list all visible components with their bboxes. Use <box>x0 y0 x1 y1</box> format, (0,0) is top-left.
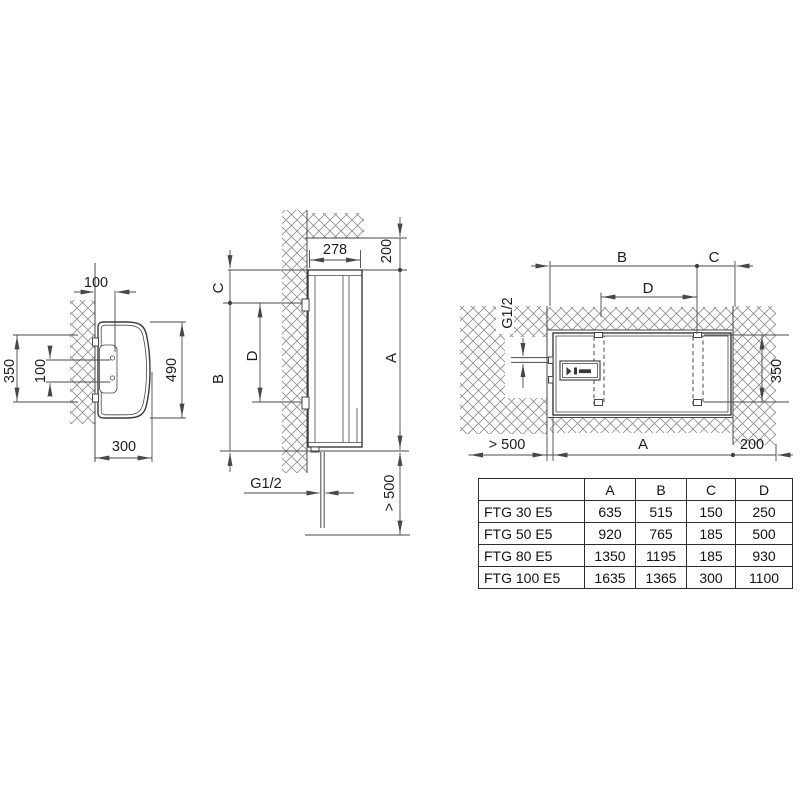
rail-hook <box>694 400 702 406</box>
wall-hatch <box>70 300 95 424</box>
value-cell: 635 <box>585 501 636 523</box>
dim-label-c: C <box>210 282 227 293</box>
horizontal-mounting-view: G1/2 B C D 350 > 500 A <box>460 249 793 461</box>
value-cell: 1635 <box>585 567 636 589</box>
header-cell-model <box>479 479 585 501</box>
table-row: FTG 80 E5 1350 1195 185 930 <box>479 545 793 567</box>
dim-label-width: 278 <box>323 242 347 258</box>
dim-label-bracket-span: 350 <box>769 359 785 383</box>
wall-hatch <box>282 210 307 473</box>
value-cell: 250 <box>736 501 793 523</box>
table-row: FTG 100 E5 1635 1365 300 1100 <box>479 567 793 589</box>
model-cell: FTG 80 E5 <box>479 545 585 567</box>
wall-bracket <box>302 397 309 409</box>
wall-bracket <box>93 338 99 346</box>
dim-label-b: B <box>210 374 227 384</box>
value-cell: 185 <box>687 523 736 545</box>
pipe-stub <box>549 377 554 384</box>
dim-label-pipe-thread: G1/2 <box>250 476 281 492</box>
table-header-row: A B C D <box>479 479 793 501</box>
dim-label-bracket-span: 350 <box>2 359 18 383</box>
dim-label-hole-spacing: 100 <box>33 359 49 383</box>
value-cell: 1195 <box>636 545 687 567</box>
ceiling-hatch <box>307 213 364 238</box>
table-row: FTG 50 E5 920 765 185 500 <box>479 523 793 545</box>
dim-label-b: B <box>617 249 627 266</box>
pipe-stub <box>549 357 554 364</box>
value-cell: 1100 <box>736 567 793 589</box>
dim-label-height: 490 <box>164 358 180 382</box>
header-cell-c: C <box>687 479 736 501</box>
value-cell: 930 <box>736 545 793 567</box>
heater-body <box>308 270 362 447</box>
value-cell: 1365 <box>636 567 687 589</box>
mounting-hole <box>110 376 114 380</box>
wall-hatch <box>547 307 733 330</box>
header-cell-b: B <box>636 479 687 501</box>
header-cell-d: D <box>736 479 793 501</box>
slider-icon <box>579 369 591 373</box>
drawing-svg: 100 350 100 490 300 <box>0 0 800 800</box>
technical-drawing-canvas: 100 350 100 490 300 <box>0 0 800 800</box>
dim-label-side-clearance: 200 <box>740 437 764 453</box>
dim-label-ceiling-clearance: 200 <box>379 239 395 263</box>
wall-bracket <box>93 394 99 402</box>
mounting-recess <box>100 345 118 393</box>
model-cell: FTG 30 E5 <box>479 501 585 523</box>
model-cell: FTG 100 E5 <box>479 567 585 589</box>
dim-label-wall-offset: 100 <box>84 275 108 291</box>
value-cell: 185 <box>687 545 736 567</box>
knob-icon <box>574 368 577 375</box>
wall-hatch <box>550 418 732 433</box>
value-cell: 765 <box>636 523 687 545</box>
cross-section-view: 100 350 100 490 300 <box>2 263 186 462</box>
wall-bracket <box>302 299 309 311</box>
dim-label-d: D <box>244 350 261 361</box>
dim-label-a: A <box>638 436 648 453</box>
dim-label-front-clearance: > 500 <box>489 437 526 453</box>
header-cell-a: A <box>585 479 636 501</box>
dim-label-c: C <box>709 249 720 266</box>
dim-label-pipe-thread: G1/2 <box>500 297 516 328</box>
table-row: FTG 30 E5 635 515 150 250 <box>479 501 793 523</box>
mounting-hole <box>110 356 114 360</box>
rail-hook <box>595 400 603 406</box>
dimension-table: A B C D FTG 30 E5 635 515 150 250 FTG 50… <box>478 478 793 589</box>
dim-label-d: D <box>643 280 654 297</box>
value-cell: 1350 <box>585 545 636 567</box>
rail-hook <box>694 333 702 338</box>
value-cell: 300 <box>687 567 736 589</box>
vertical-mounting-view: 278 200 A > 500 C B D G1/2 <box>210 210 410 535</box>
rail-hook <box>595 333 603 338</box>
value-cell: 500 <box>736 523 793 545</box>
model-cell: FTG 50 E5 <box>479 523 585 545</box>
pipe-channel <box>505 337 547 398</box>
value-cell: 515 <box>636 501 687 523</box>
value-cell: 920 <box>585 523 636 545</box>
dim-label-a: A <box>383 353 400 363</box>
dim-label-floor-clearance: > 500 <box>382 475 398 512</box>
value-cell: 150 <box>687 501 736 523</box>
dim-label-depth: 300 <box>112 439 136 455</box>
